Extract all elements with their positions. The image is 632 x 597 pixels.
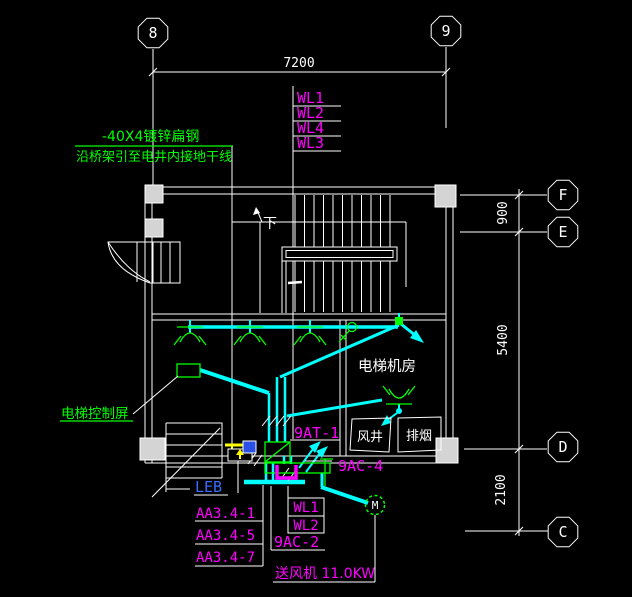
panel-9ac4-label: 9AC-4 bbox=[338, 457, 383, 475]
terminal-block bbox=[243, 441, 256, 453]
column bbox=[145, 185, 163, 203]
columns bbox=[140, 185, 458, 463]
circuit-wl1: WL1 bbox=[293, 500, 318, 516]
feeder-labels: AA3.4-1 AA3.4-5 AA3.4-7 bbox=[195, 485, 263, 566]
lamp-icon bbox=[383, 386, 415, 404]
panel-9at1-symbol bbox=[265, 442, 290, 462]
fan-circuit-labels: WL1 WL2 bbox=[288, 486, 324, 534]
feeder-aa345: AA3.4-5 bbox=[196, 528, 255, 544]
column bbox=[435, 185, 456, 207]
riser-wl3: WL3 bbox=[297, 134, 324, 152]
fan-motor-symbol: M bbox=[366, 496, 385, 515]
feeder-aa341: AA3.4-1 bbox=[196, 506, 255, 522]
circuit-wl2: WL2 bbox=[293, 518, 318, 534]
wire-arrow-icon bbox=[381, 415, 391, 426]
leb-terminal bbox=[225, 441, 256, 461]
feeder-aa347: AA3.4-7 bbox=[196, 550, 255, 566]
grid-bubble-9-label: 9 bbox=[441, 22, 450, 40]
conduit-bundle bbox=[269, 377, 285, 442]
leb-label: LEB bbox=[195, 478, 222, 496]
junction-box bbox=[395, 317, 403, 325]
column bbox=[140, 438, 165, 460]
leader-line bbox=[133, 376, 178, 414]
grid-bubble-E-label: E bbox=[558, 223, 567, 241]
stair-handrail bbox=[282, 247, 397, 261]
wiring bbox=[188, 313, 424, 503]
panel-9ac2-label: 9AC-2 bbox=[274, 533, 319, 551]
wire-from-control-panel bbox=[200, 370, 269, 393]
motor-label: M bbox=[372, 499, 379, 512]
cad-electrical-plan: 7200 8 9 900 5400 2100 F E D C bbox=[0, 0, 632, 597]
shaft-boxes: 风井 排烟 bbox=[350, 417, 441, 452]
elevator-control-panel-label: 电梯控制屏 bbox=[61, 406, 129, 422]
panel-9at1-label: 9AT-1 bbox=[294, 424, 339, 442]
dim-top: 7200 bbox=[283, 56, 314, 71]
ground-note-line1: -40X4镀锌扁钢 bbox=[102, 128, 199, 145]
ground-note-line2: 沿桥架引至电井内接地干线 bbox=[76, 149, 232, 165]
wire-to-fan-motor bbox=[321, 487, 368, 503]
wire-to-room-lamp bbox=[287, 400, 382, 416]
stairwell: 下 bbox=[232, 195, 406, 313]
column bbox=[145, 219, 163, 237]
dim-2100: 2100 bbox=[494, 474, 509, 505]
stair-down-label: 下 bbox=[263, 216, 277, 232]
drawing-canvas: 7200 8 9 900 5400 2100 F E D C bbox=[0, 0, 632, 597]
exterior-winder-stair bbox=[108, 242, 180, 283]
grid-bubble-D-label: D bbox=[558, 438, 567, 456]
dim-900: 900 bbox=[496, 201, 511, 224]
elevator-control-panel-symbol bbox=[177, 364, 200, 377]
air-shaft-label: 风井 bbox=[357, 430, 383, 445]
machine-room-label: 电梯机房 bbox=[358, 358, 416, 375]
riser-labels: WL1 WL2 WL4 WL3 bbox=[293, 89, 341, 152]
fan-note-label: 送风机 11.0KW bbox=[275, 566, 375, 582]
stair-break-mark bbox=[288, 282, 302, 283]
smoke-exhaust-label: 排烟 bbox=[406, 429, 432, 444]
annotations: -40X4镀锌扁钢 沿桥架引至电井内接地干线 WL1 WL2 WL4 WL3 电… bbox=[60, 89, 416, 582]
grid-bubble-F-label: F bbox=[558, 186, 567, 204]
grid-bubble-8-label: 8 bbox=[148, 24, 157, 42]
grid-bubble-C-label: C bbox=[558, 523, 567, 541]
dim-5400: 5400 bbox=[496, 324, 511, 355]
